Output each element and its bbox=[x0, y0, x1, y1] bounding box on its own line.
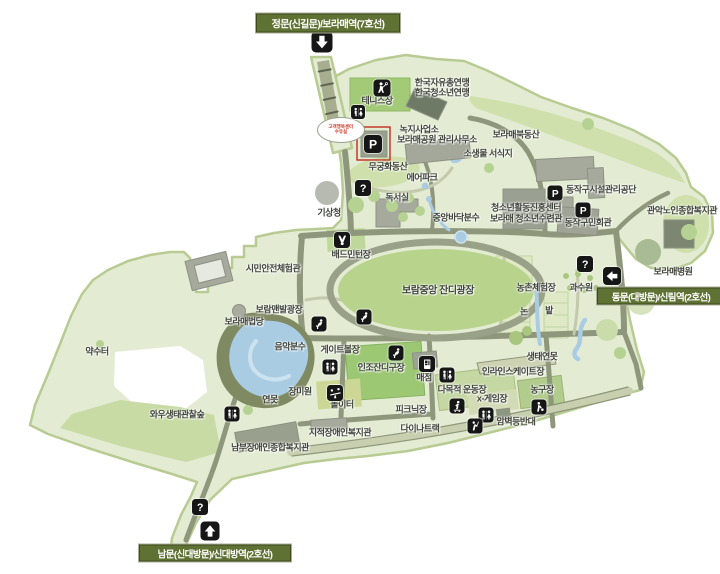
place-label: 시민안전체험관 bbox=[246, 262, 300, 275]
svg-text:P: P bbox=[580, 206, 587, 217]
drinking-fountain-icon bbox=[357, 310, 372, 325]
callout-line2: 수유실 bbox=[335, 130, 347, 135]
svg-text:?: ? bbox=[582, 259, 589, 271]
place-label: 인조잔디구장 bbox=[358, 361, 405, 374]
place-label: 다이나트랙 bbox=[401, 422, 440, 435]
badminton-icon bbox=[334, 232, 350, 248]
place-label: 보라매북동산 bbox=[493, 128, 540, 141]
place-label: 피크닉장 bbox=[395, 403, 426, 416]
drinking-fountain-icon bbox=[312, 317, 327, 332]
place-label: 농촌체험장 bbox=[517, 281, 556, 294]
gate-north-badge: 정문(신길문)/보라매역(7호선) bbox=[256, 14, 400, 33]
info-icon: ? bbox=[192, 499, 208, 515]
place-label: 보라매병원 bbox=[654, 265, 693, 278]
climbing-icon bbox=[468, 419, 483, 434]
place-label: 밭 bbox=[545, 304, 553, 317]
svg-text:?: ? bbox=[197, 502, 204, 514]
place-label: 보라매공원 관리사무소 bbox=[397, 133, 477, 146]
place-label: 장미원 bbox=[288, 385, 311, 398]
restroom-icon bbox=[351, 105, 365, 119]
parking-icon: P bbox=[364, 135, 382, 153]
place-label: 동작구민회관 bbox=[565, 216, 612, 229]
place-label: 농구장 bbox=[530, 383, 553, 396]
place-label: 인라인스케이트장 bbox=[482, 365, 544, 378]
place-label: 매점 bbox=[416, 371, 432, 384]
parking-icon: P bbox=[548, 186, 563, 201]
place-label: 소생물 서식지 bbox=[464, 147, 513, 160]
place-label: 기상청 bbox=[317, 206, 340, 219]
svg-text:P: P bbox=[369, 137, 377, 151]
arrow-up-icon bbox=[201, 522, 220, 541]
info-icon: ? bbox=[355, 180, 371, 196]
arrow-down-icon bbox=[312, 32, 333, 53]
place-label: 연못 bbox=[262, 393, 278, 406]
place-label: 보람중앙 잔디광장 bbox=[402, 282, 474, 297]
place-label: 지적장애인복지관 bbox=[309, 426, 371, 439]
place-label: 무궁화동산 bbox=[369, 160, 408, 173]
place-label: 논 bbox=[520, 305, 528, 318]
place-label: 게이트볼장 bbox=[321, 343, 360, 356]
gate-south-badge: 남문(신대방문)/신대방역(2호선) bbox=[139, 545, 291, 562]
drinking-fountain-icon bbox=[389, 346, 404, 361]
playground-icon bbox=[327, 385, 343, 401]
arrow-left-icon bbox=[603, 267, 621, 285]
place-label: 에어파크 bbox=[406, 171, 437, 184]
place-label: 독서실 bbox=[385, 191, 408, 204]
parking-icon: P bbox=[576, 203, 591, 218]
place-label: 보라매 청소년수련관 bbox=[490, 212, 562, 225]
place-label: 남부장애인종합복지관 bbox=[231, 441, 309, 454]
place-label: 배드민턴장 bbox=[332, 248, 371, 261]
park-map: 정문(신길문)/보라매역(7호선) 동문(대방문)/신림역(2호선) 남문(신대… bbox=[0, 0, 720, 574]
nursing-room-callout: 고객행복센터 수유실 bbox=[317, 117, 365, 143]
place-label: 중앙바닥분수 bbox=[433, 211, 480, 224]
restroom-icon bbox=[323, 360, 338, 375]
basketball-icon bbox=[532, 400, 547, 415]
tennis-icon bbox=[374, 80, 391, 97]
inline-skate-icon bbox=[450, 399, 465, 414]
svg-text:?: ? bbox=[360, 183, 367, 195]
place-label: 과수원 bbox=[569, 281, 592, 294]
place-label: 생태연못 bbox=[526, 350, 557, 363]
place-label: 와우생태관찰숲 bbox=[150, 408, 204, 421]
place-label: 약수터 bbox=[85, 345, 108, 358]
place-label: 동작구시설관리공단 bbox=[566, 183, 636, 196]
place-label: 관악노인종합복지관 bbox=[647, 204, 717, 217]
place-label: 암벽등반대 bbox=[497, 415, 536, 428]
place-label: x-게임장 bbox=[477, 392, 507, 405]
restroom-icon bbox=[440, 368, 455, 383]
gate-east-badge: 동문(대방문)/신림역(2호선) bbox=[597, 288, 720, 305]
info-icon: ? bbox=[577, 256, 593, 272]
place-label: 보라매법당 bbox=[225, 315, 264, 328]
place-label: 음악분수 bbox=[274, 340, 305, 353]
shop-icon bbox=[419, 356, 435, 372]
svg-text:P: P bbox=[552, 189, 559, 200]
place-label: 한국청소년연맹 bbox=[415, 86, 469, 99]
restroom-icon bbox=[225, 407, 240, 422]
